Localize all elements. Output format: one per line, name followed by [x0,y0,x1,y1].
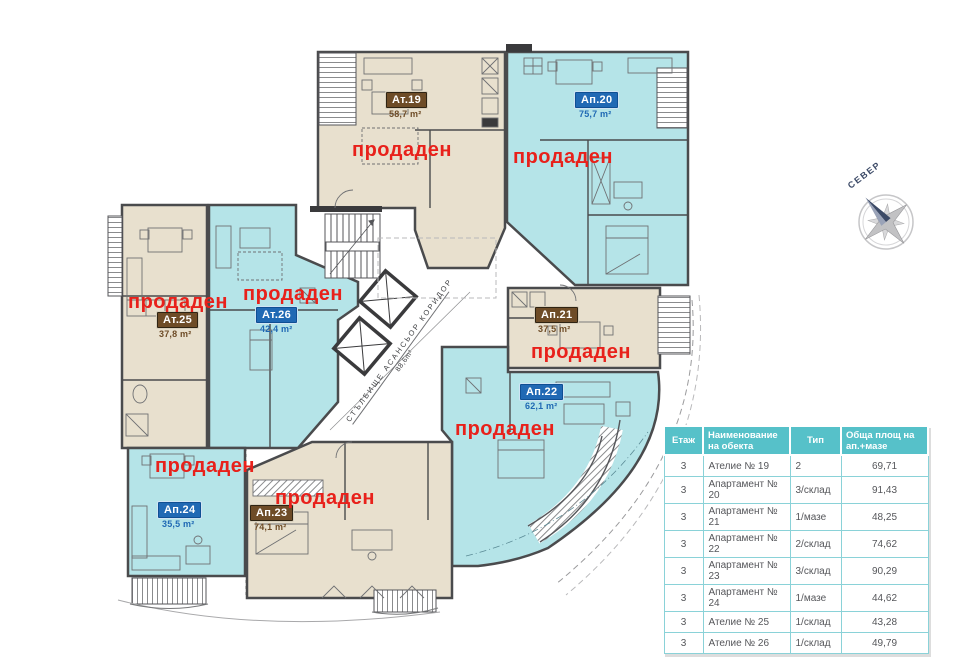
unit-area-at26: 42,4 m² [260,324,292,334]
table-header-type: Тип [790,426,841,455]
cell-area: 69,71 [841,455,928,477]
cell-type: 1/мазе [790,504,841,531]
table-row: 3 Апартамент № 21 1/мазе 48,25 [664,504,928,531]
table-row: 3 Ателие № 19 2 69,71 [664,455,928,477]
cell-floor: 3 [664,504,703,531]
cell-area: 48,25 [841,504,928,531]
table-row: 3 Ателие № 26 1/склад 49,79 [664,633,928,654]
unit-area-ap21: 37,5 m² [538,324,570,334]
cell-area: 43,28 [841,612,928,633]
cell-area: 91,43 [841,477,928,504]
unit-area-ap23: 74,1 m² [254,522,286,532]
sold-label-at25: продаден [128,291,228,314]
cell-area: 49,79 [841,633,928,654]
cell-floor: 3 [664,612,703,633]
table-header-area: Обща площ на ап.+мазе [841,426,928,455]
sold-label-ap24: продаден [155,455,255,478]
unit-badge-at26[interactable]: Ат.26 [256,307,297,323]
cell-type: 3/склад [790,558,841,585]
floor-plan-page: СТЪЛБИЩЕ АСАНСЬОР КОРИДОР 88,6m² СЕВЕР А… [0,0,959,670]
sold-label-ap23: продаден [275,487,375,510]
cell-type: 1/мазе [790,585,841,612]
cell-name: Ателие № 19 [703,455,790,477]
cell-area: 74,62 [841,531,928,558]
sold-label-ap21: продаден [531,341,631,364]
table-row: 3 Апартамент № 24 1/мазе 44,62 [664,585,928,612]
cell-name: Апартамент № 20 [703,477,790,504]
cell-name: Апартамент № 22 [703,531,790,558]
sold-label-at19: продаден [352,139,452,162]
table-header-floor: Етаж [664,426,703,455]
unit-area-ap24: 35,5 m² [162,519,194,529]
cell-area: 44,62 [841,585,928,612]
cell-floor: 3 [664,531,703,558]
cell-floor: 3 [664,585,703,612]
table-row: 3 Апартамент № 23 3/склад 90,29 [664,558,928,585]
sold-label-at26: продаден [243,283,343,306]
unit-badge-ap24[interactable]: Ап.24 [158,502,201,518]
unit-badge-ap20[interactable]: Ап.20 [575,92,618,108]
unit-badge-ap21[interactable]: Ап.21 [535,307,578,323]
cell-floor: 3 [664,455,703,477]
unit-area-at19: 58,7 m² [389,109,421,119]
table-header-row: Етаж Наименование на обекта Тип Обща пло… [664,426,928,455]
unit-badge-ap22[interactable]: Ап.22 [520,384,563,400]
cell-name: Апартамент № 23 [703,558,790,585]
cell-type: 2 [790,455,841,477]
cell-type: 1/склад [790,612,841,633]
unit-area-at25: 37,8 m² [159,329,191,339]
cell-name: Ателие № 25 [703,612,790,633]
table-row: 3 Ателие № 25 1/склад 43,28 [664,612,928,633]
unit-area-ap20: 75,7 m² [579,109,611,119]
cell-floor: 3 [664,633,703,654]
compass-icon [845,180,925,261]
cell-floor: 3 [664,558,703,585]
cell-name: Апартамент № 21 [703,504,790,531]
sold-label-ap20: продаден [513,146,613,169]
cell-name: Ателие № 26 [703,633,790,654]
unit-badge-at19[interactable]: Ат.19 [386,92,427,108]
table-row: 3 Апартамент № 20 3/склад 91,43 [664,477,928,504]
cell-area: 90,29 [841,558,928,585]
unit-area-ap22: 62,1 m² [525,401,557,411]
sold-label-ap22: продаден [455,418,555,441]
cell-floor: 3 [664,477,703,504]
cell-type: 3/склад [790,477,841,504]
units-table: Етаж Наименование на обекта Тип Обща пло… [663,425,929,654]
unit-badge-at25[interactable]: Ат.25 [157,312,198,328]
cell-name: Апартамент № 24 [703,585,790,612]
cell-type: 2/склад [790,531,841,558]
table-header-name: Наименование на обекта [703,426,790,455]
cell-type: 1/склад [790,633,841,654]
table-row: 3 Апартамент № 22 2/склад 74,62 [664,531,928,558]
